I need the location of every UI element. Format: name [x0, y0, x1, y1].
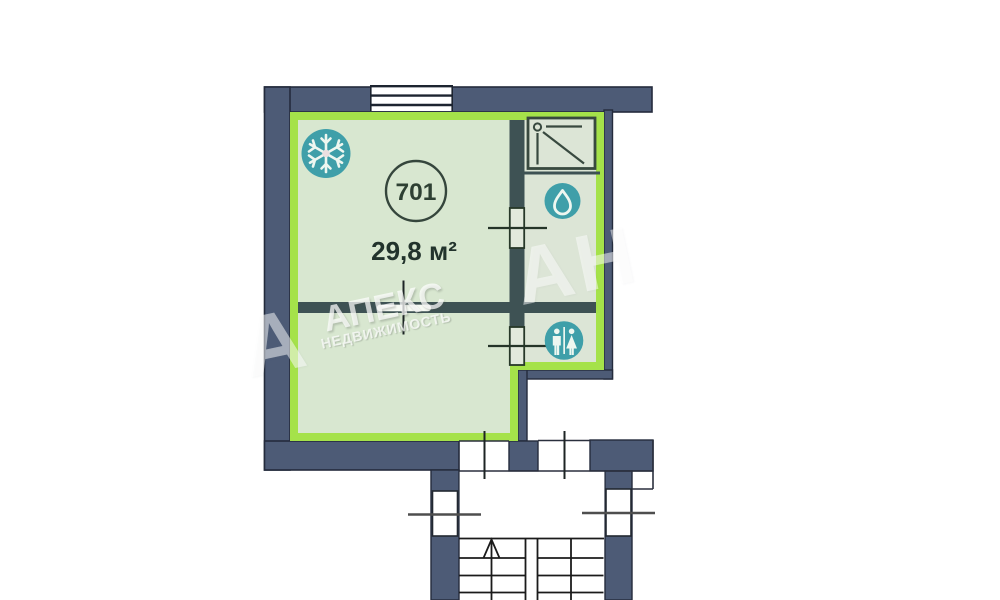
- svg-text:701: 701: [396, 179, 437, 206]
- svg-text:29,8 м²: 29,8 м²: [371, 236, 457, 266]
